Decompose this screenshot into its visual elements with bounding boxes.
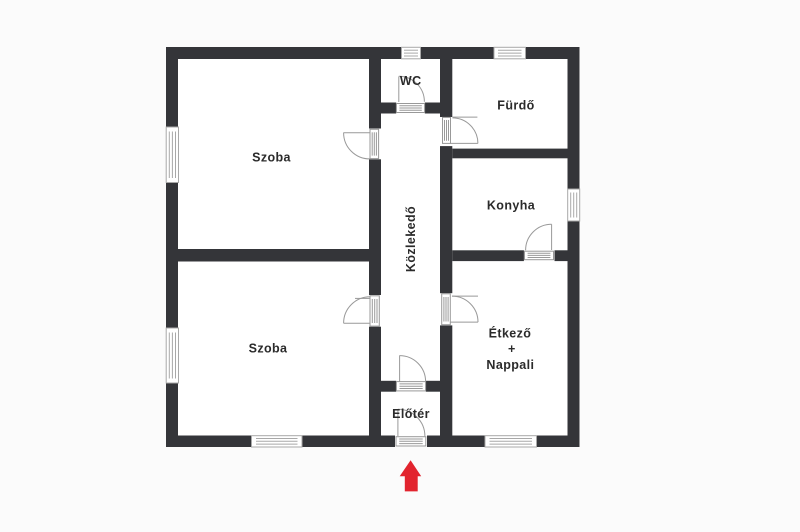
svg-text:WC: WC — [400, 74, 422, 88]
svg-text:Szoba: Szoba — [252, 151, 291, 165]
svg-text:Nappali: Nappali — [486, 358, 534, 372]
svg-text:Fürdő: Fürdő — [497, 99, 534, 113]
svg-text:Szoba: Szoba — [249, 342, 288, 356]
svg-text:Étkező: Étkező — [489, 325, 532, 340]
svg-text:+: + — [508, 342, 515, 356]
svg-text:Konyha: Konyha — [487, 198, 536, 212]
svg-text:Előtér: Előtér — [392, 407, 430, 421]
svg-text:Közlekedő: Közlekedő — [404, 206, 418, 272]
